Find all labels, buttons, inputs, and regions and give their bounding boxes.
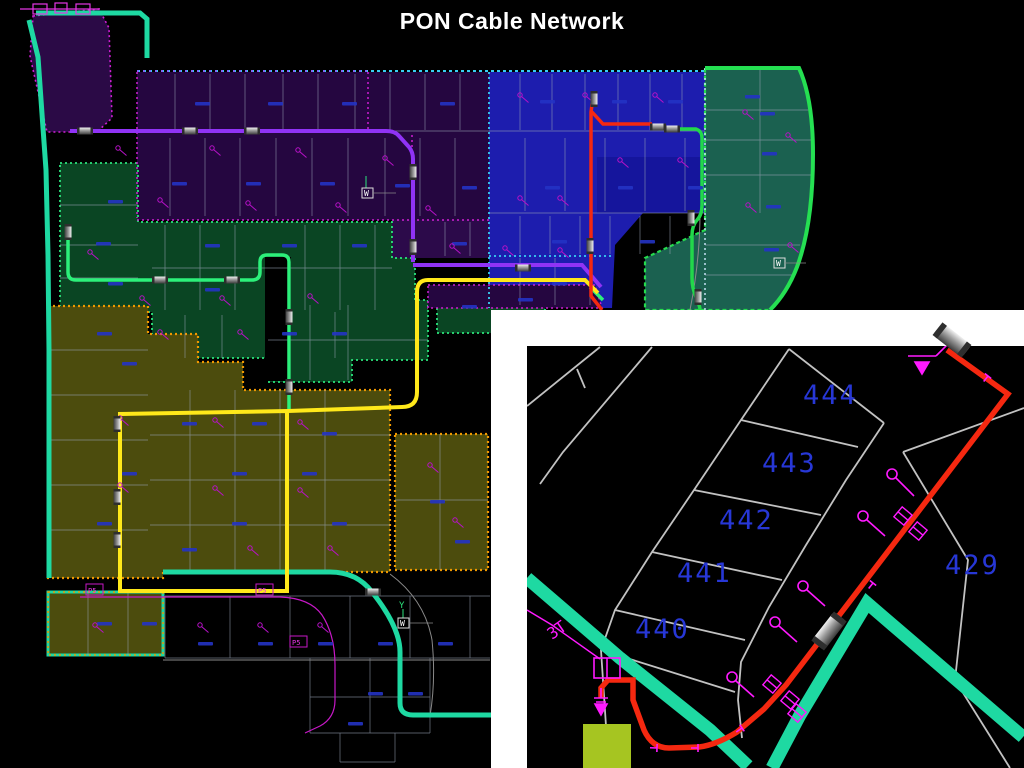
lot-number: 429 (945, 550, 1000, 581)
splice-closure (65, 224, 72, 240)
splice-closure (695, 289, 702, 305)
splice-closure (650, 124, 666, 131)
splice-closure (410, 239, 417, 255)
axis-marker-w: W (400, 619, 405, 628)
axis-marker-w: W (776, 259, 781, 268)
lot-number: 440 (635, 614, 690, 645)
lot-number: 441 (677, 558, 732, 589)
splice-closure (182, 128, 198, 135)
splice-closure (365, 589, 381, 596)
lot-number: 444 (803, 380, 858, 411)
splice-closure (286, 309, 293, 325)
zone-purple-strip (428, 285, 602, 308)
pon-network-map: P5 P5 P5 W Y W W (0, 0, 1024, 768)
page-title: PON Cable Network (0, 8, 1024, 35)
slide: P5 P5 P5 W Y W W (0, 0, 1024, 768)
p5-label: P5 (88, 587, 96, 595)
splice-closure (77, 128, 93, 135)
splice-closure (114, 532, 121, 548)
splice-closure (244, 128, 260, 135)
splice-closure (410, 164, 417, 180)
splice-closure (664, 126, 680, 133)
axis-marker-y: Y (399, 601, 405, 611)
splice-closure (515, 265, 531, 272)
axis-marker-w: W (364, 189, 369, 198)
splice-closure (587, 238, 594, 254)
splice-closure (114, 416, 121, 432)
splice-closure (224, 277, 240, 284)
inset-green-square (583, 724, 631, 768)
p5-label: P5 (292, 639, 300, 647)
zone-purple-main (137, 72, 489, 220)
zone-navy-block (597, 157, 705, 213)
inset-detail-panel: 3T 444 443 442 441 440 429 (491, 310, 1024, 768)
splice-closure (286, 379, 293, 395)
splice-closure (688, 210, 695, 226)
splice-closure (591, 91, 598, 107)
splice-closure (152, 277, 168, 284)
splice-closure (114, 489, 121, 505)
p5-label: P5 (258, 587, 266, 595)
lot-number: 442 (719, 505, 774, 536)
lot-number: 443 (762, 448, 817, 479)
